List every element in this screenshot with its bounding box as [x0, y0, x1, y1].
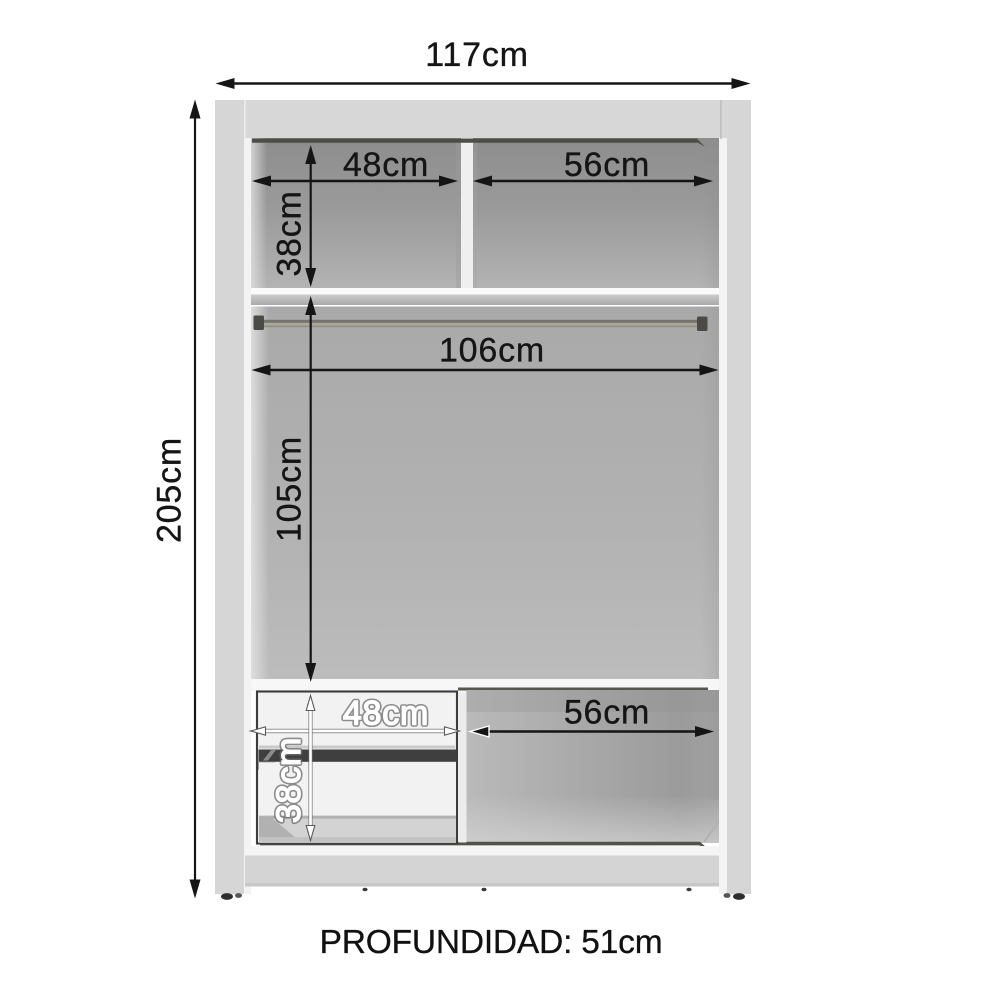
svg-text:205cm: 205cm — [151, 437, 189, 543]
svg-text:56cm: 56cm — [564, 146, 650, 184]
svg-text:117cm: 117cm — [425, 36, 529, 74]
svg-text:105cm: 105cm — [270, 436, 308, 542]
svg-text:48cm: 48cm — [343, 695, 429, 733]
svg-text:56cm: 56cm — [564, 694, 650, 732]
svg-text:38cm: 38cm — [270, 190, 308, 276]
svg-text:38cm: 38cm — [270, 737, 308, 823]
svg-text:48cm: 48cm — [343, 146, 429, 184]
svg-text:PROFUNDIDAD: 51cm: PROFUNDIDAD: 51cm — [320, 924, 663, 961]
svg-text:106cm: 106cm — [439, 332, 545, 370]
